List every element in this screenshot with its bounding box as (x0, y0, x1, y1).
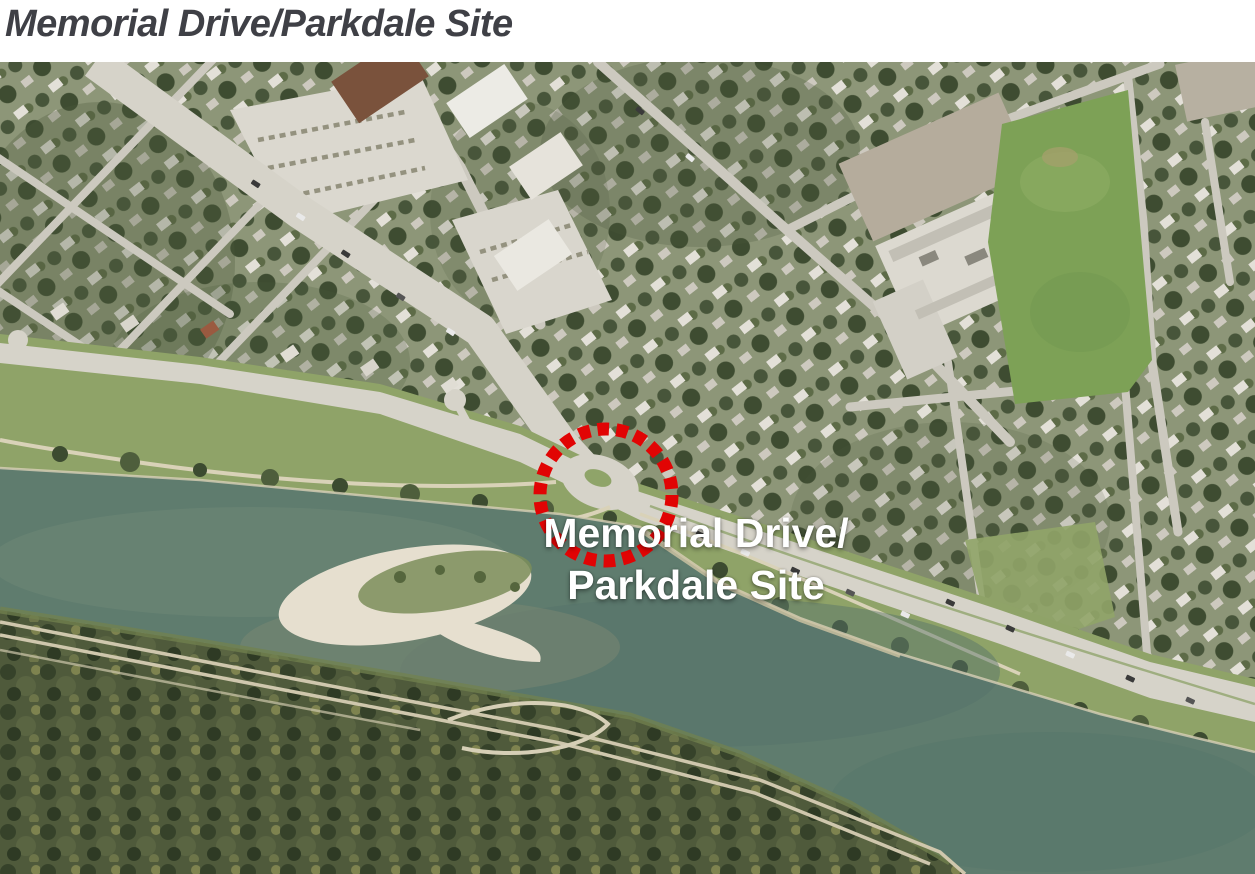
sports-field (988, 90, 1152, 404)
page-title: Memorial Drive/Parkdale Site (5, 0, 513, 49)
page: Memorial Drive/Parkdale Site (0, 0, 1255, 874)
aerial-photo: Memorial Drive/ Parkdale Site (0, 62, 1255, 874)
site-label-line1: Memorial Drive/ (543, 508, 848, 560)
aerial-photo-scene (0, 62, 1255, 874)
site-label-line2: Parkdale Site (543, 560, 848, 612)
site-label: Memorial Drive/ Parkdale Site (543, 508, 848, 611)
